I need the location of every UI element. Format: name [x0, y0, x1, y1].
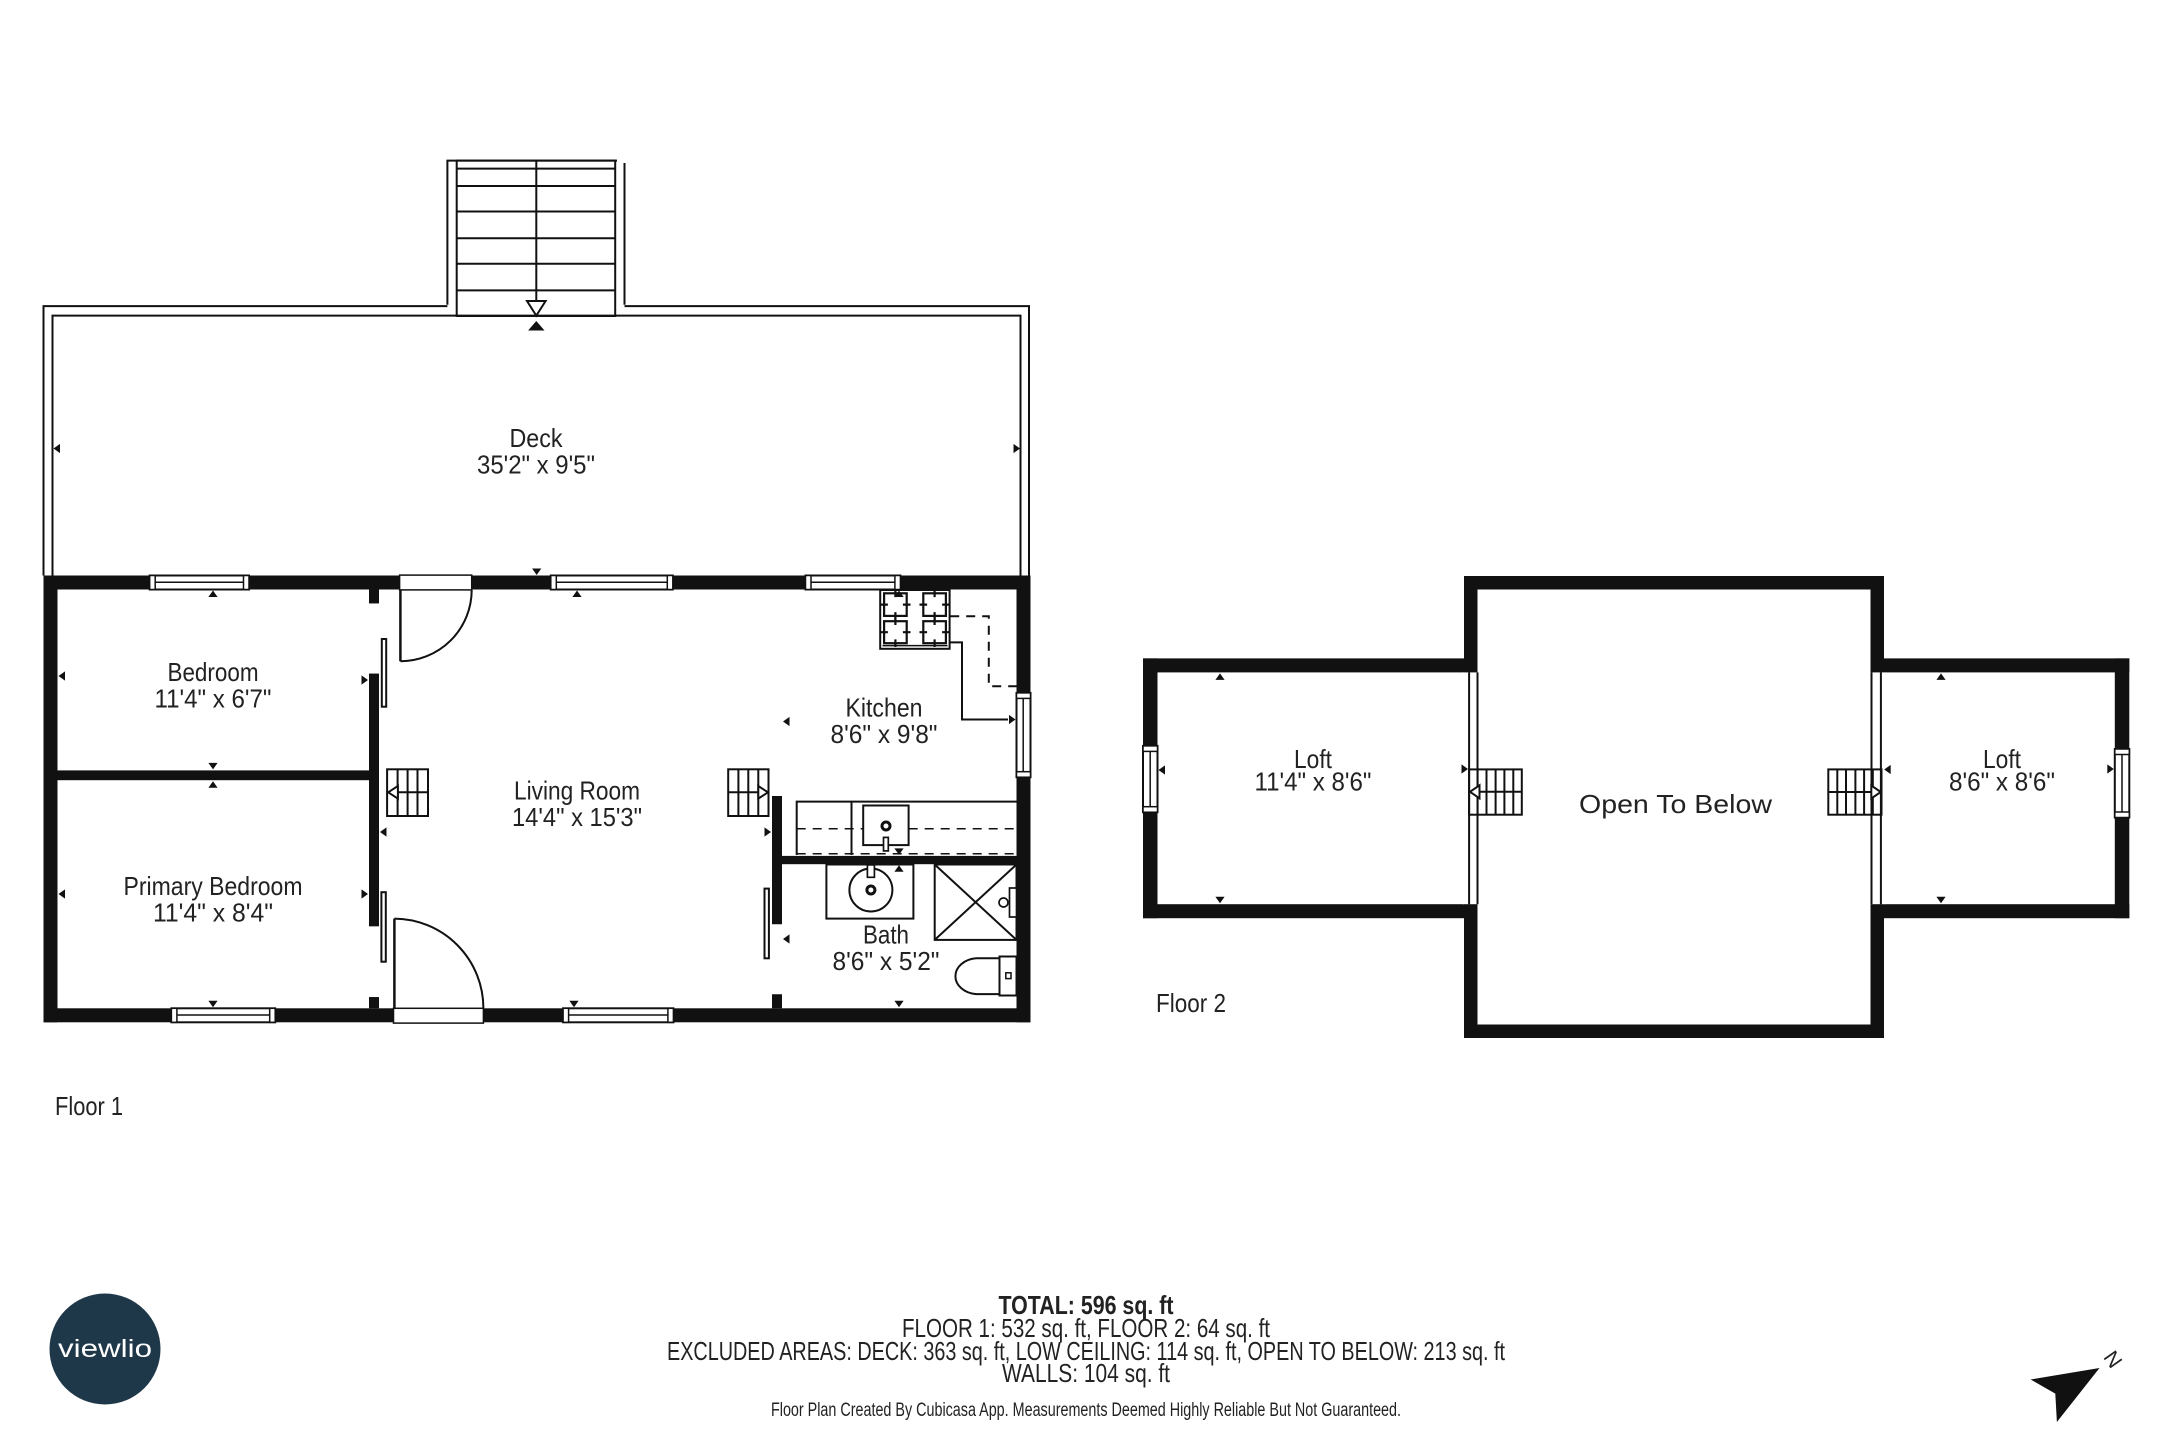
svg-text:viewlio: viewlio	[58, 1335, 152, 1363]
svg-text:Floor 1: Floor 1	[55, 1091, 123, 1121]
svg-text:WALLS: 104 sq. ft: WALLS: 104 sq. ft	[1002, 1358, 1171, 1388]
svg-text:Floor Plan Created By Cubicasa: Floor Plan Created By Cubicasa App. Meas…	[771, 1400, 1401, 1421]
svg-text:Primary Bedroom: Primary Bedroom	[124, 871, 303, 901]
svg-text:Living Room: Living Room	[514, 776, 640, 806]
svg-text:8'6" x 9'8": 8'6" x 9'8"	[831, 719, 938, 749]
svg-text:Bath: Bath	[863, 920, 909, 950]
svg-text:11'4" x 8'6": 11'4" x 8'6"	[1255, 767, 1372, 797]
svg-text:8'6" x 8'6": 8'6" x 8'6"	[1949, 767, 2055, 797]
svg-text:Floor 2: Floor 2	[1156, 988, 1226, 1018]
svg-text:Kitchen: Kitchen	[846, 693, 923, 723]
svg-text:35'2" x 9'5": 35'2" x 9'5"	[477, 450, 595, 480]
svg-text:Deck: Deck	[510, 423, 564, 453]
svg-text:Bedroom: Bedroom	[168, 657, 259, 687]
svg-text:Open To Below: Open To Below	[1579, 789, 1772, 819]
svg-text:14'4" x 15'3": 14'4" x 15'3"	[512, 802, 642, 832]
svg-text:8'6" x 5'2": 8'6" x 5'2"	[833, 946, 940, 976]
svg-text:11'4" x 8'4": 11'4" x 8'4"	[153, 898, 273, 928]
svg-text:11'4" x 6'7": 11'4" x 6'7"	[155, 684, 272, 714]
